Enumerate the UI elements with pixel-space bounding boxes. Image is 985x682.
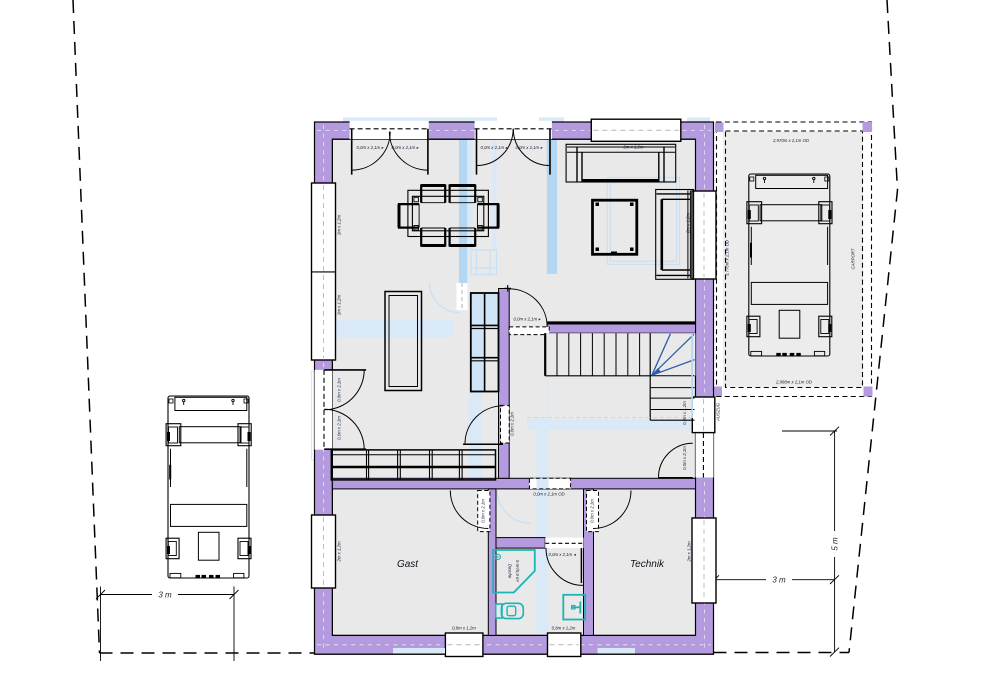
svg-text:0,0m x 2,1m: 0,0m x 2,1m — [337, 378, 342, 402]
svg-text:0,0m x 2,1m OD: 0,0m x 2,1m OD — [533, 492, 564, 497]
svg-text:0,0m x 2,1m: 0,0m x 2,1m — [481, 499, 486, 523]
svg-text:2m x 1,2m: 2m x 1,2m — [686, 213, 691, 234]
svg-text:3 m: 3 m — [158, 591, 172, 600]
svg-text:0,0m x 2,1m ◂: 0,0m x 2,1m ◂ — [549, 552, 577, 557]
svg-text:3,770m x 2,1m OD: 3,770m x 2,1m OD — [725, 240, 730, 276]
svg-text:0,0m x 2,1m: 0,0m x 2,1m — [510, 412, 515, 436]
svg-text:Dusche: Dusche — [508, 564, 513, 579]
svg-text:0,0m x 2,1m ▸: 0,0m x 2,1m ▸ — [514, 317, 542, 322]
svg-text:2m x 1,2m: 2m x 1,2m — [687, 541, 692, 562]
svg-text:2m x 1,2m: 2m x 1,2m — [622, 145, 643, 150]
svg-text:2m x 1,2m: 2m x 1,2m — [337, 295, 342, 316]
svg-text:Gast: Gast — [397, 559, 419, 570]
svg-text:5 m: 5 m — [831, 537, 840, 551]
svg-text:9 m²/0,9 m³: 9 m²/0,9 m³ — [515, 560, 520, 583]
svg-text:0,0m x 2,1m: 0,0m x 2,1m — [682, 446, 687, 470]
svg-text:CARPORT: CARPORT — [851, 248, 856, 269]
svg-text:2,970m x 2,1m OD: 2,970m x 2,1m OD — [772, 138, 809, 143]
svg-text:0,8m x 1,2m: 0,8m x 1,2m — [682, 401, 687, 425]
svg-text:0,0m x 2,1m: 0,0m x 2,1m — [337, 416, 342, 440]
svg-text:0,0m x 2,1m ▸: 0,0m x 2,1m ▸ — [392, 145, 420, 150]
svg-text:Technik: Technik — [630, 559, 665, 570]
svg-text:0,8m x 1,2m: 0,8m x 1,2m — [552, 626, 576, 631]
svg-text:0,0m x 2,1m ▸: 0,0m x 2,1m ▸ — [357, 145, 385, 150]
svg-text:3 m: 3 m — [772, 576, 786, 585]
svg-text:2,988m x 2,1m OD: 2,988m x 2,1m OD — [775, 380, 812, 385]
svg-text:0,0m x 2,1m: 0,0m x 2,1m — [590, 499, 595, 523]
svg-text:AUSZUG: AUSZUG — [716, 402, 721, 422]
svg-text:2m x 1,2m: 2m x 1,2m — [337, 215, 342, 236]
svg-text:0,0m x 2,1m ▸: 0,0m x 2,1m ▸ — [516, 145, 544, 150]
svg-text:0,0m x 2,1m ▸: 0,0m x 2,1m ▸ — [481, 145, 509, 150]
svg-text:0,8m x 1,2m: 0,8m x 1,2m — [452, 626, 476, 631]
svg-text:2m x 1,2m: 2m x 1,2m — [337, 541, 342, 562]
